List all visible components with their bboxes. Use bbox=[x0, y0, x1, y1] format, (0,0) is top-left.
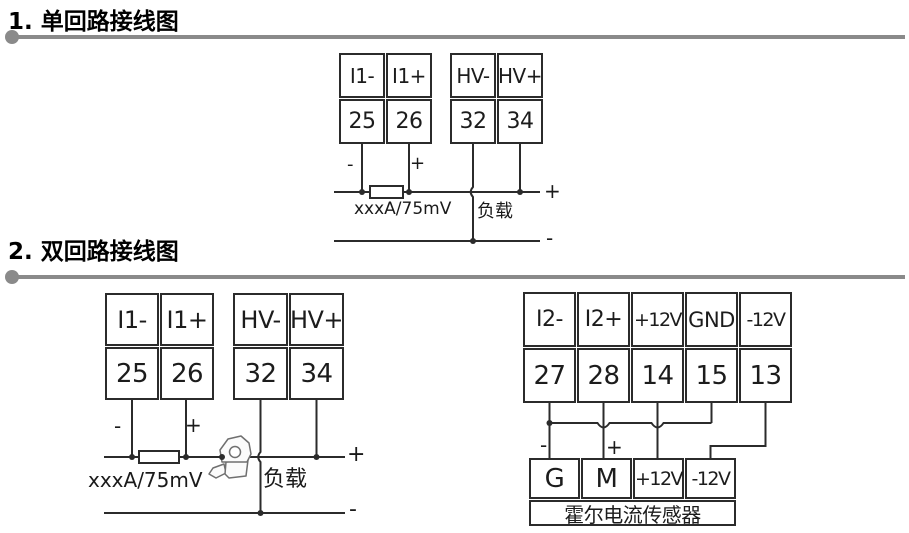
wires-section1 bbox=[334, 144, 540, 241]
terminal-label: +12V bbox=[631, 292, 684, 347]
terminal-number: 15 bbox=[685, 348, 738, 403]
section1-title: 1. 单回路接线图 bbox=[8, 2, 179, 36]
shunt-resistor bbox=[139, 451, 179, 463]
shunt-rating-label: xxxA/75mV bbox=[354, 201, 451, 218]
terminal-label: I1+ bbox=[160, 293, 214, 346]
polarity-minus: - bbox=[347, 156, 354, 174]
terminal-number: 27 bbox=[523, 348, 576, 403]
terminal-block-hv-s1: HV- HV+ 32 34 bbox=[450, 53, 543, 144]
terminal-number: 14 bbox=[631, 348, 684, 403]
shunt-resistor bbox=[370, 186, 403, 198]
terminal-number: 25 bbox=[105, 347, 159, 400]
terminal-number: 13 bbox=[739, 348, 792, 403]
sensor-terminal-label: -12V bbox=[685, 458, 736, 499]
wires-section2-right bbox=[550, 402, 766, 458]
bus-minus-label: - bbox=[349, 499, 357, 521]
terminal-label: HV+ bbox=[289, 293, 344, 346]
section2-separator bbox=[11, 275, 905, 279]
terminal-number: 34 bbox=[289, 347, 344, 400]
separator-dot bbox=[5, 270, 19, 284]
sensor-terminal-label: G bbox=[529, 458, 580, 499]
hall-sensor-block: G M +12V -12V 霍尔电流传感器 bbox=[529, 458, 736, 526]
terminal-label: I2+ bbox=[577, 292, 630, 347]
minus12v-route bbox=[711, 402, 766, 458]
terminal-label: HV- bbox=[450, 53, 496, 98]
terminal-label: I1+ bbox=[386, 53, 432, 98]
shunt-rating-label: xxxA/75mV bbox=[88, 470, 203, 490]
terminal-number: 28 bbox=[577, 348, 630, 403]
terminal-block-hv-s2: HV- HV+ 32 34 bbox=[233, 293, 344, 400]
terminal-block-i1-s1: I1- I1+ 25 26 bbox=[339, 53, 432, 144]
bus-plus-label: + bbox=[544, 181, 561, 201]
terminal-number: 32 bbox=[233, 347, 288, 400]
bus-plus-label: + bbox=[347, 444, 365, 466]
polarity-plus: + bbox=[606, 437, 623, 457]
polarity-minus: - bbox=[540, 435, 547, 455]
terminal-label: I1- bbox=[339, 53, 385, 98]
polarity-plus: + bbox=[185, 415, 202, 435]
load-label: 负载 bbox=[477, 203, 513, 221]
section2-title: 2. 双回路接线图 bbox=[8, 232, 179, 266]
terminal-label: HV+ bbox=[497, 53, 543, 98]
load-label: 负载 bbox=[263, 469, 307, 491]
terminal-block-i2-s2: I2- I2+ +12V GND -12V 27 28 14 15 13 bbox=[523, 292, 792, 403]
terminal-label: HV- bbox=[233, 293, 288, 346]
terminal-number: 26 bbox=[160, 347, 214, 400]
section1-separator bbox=[11, 35, 905, 39]
terminal-number: 34 bbox=[497, 99, 543, 144]
terminal-number: 25 bbox=[339, 99, 385, 144]
terminal-block-i1-s2: I1- I1+ 25 26 bbox=[105, 293, 214, 400]
terminal-label: GND bbox=[685, 292, 738, 347]
gnd-bus bbox=[550, 423, 712, 428]
bus-minus-label: - bbox=[546, 228, 553, 248]
load-wire-crossing bbox=[471, 144, 473, 241]
sensor-terminal-label: M bbox=[581, 458, 632, 499]
sensor-terminal-label: +12V bbox=[633, 458, 684, 499]
terminal-number: 32 bbox=[450, 99, 496, 144]
terminal-label: I1- bbox=[105, 293, 159, 346]
load-wire-crossing bbox=[258, 400, 260, 513]
separator-dot bbox=[5, 30, 19, 44]
polarity-plus: + bbox=[410, 155, 425, 173]
terminal-number: 26 bbox=[386, 99, 432, 144]
terminal-label: -12V bbox=[739, 292, 792, 347]
wires-section2-left bbox=[104, 400, 345, 513]
terminal-label: I2- bbox=[523, 292, 576, 347]
polarity-minus: - bbox=[114, 416, 121, 436]
hall-clamp-icon bbox=[209, 436, 251, 478]
hall-sensor-name: 霍尔电流传感器 bbox=[529, 500, 736, 526]
wiring-diagram-page: 1. 单回路接线图 I1- I1+ 25 26 HV- HV+ 32 34 2.… bbox=[0, 0, 909, 533]
